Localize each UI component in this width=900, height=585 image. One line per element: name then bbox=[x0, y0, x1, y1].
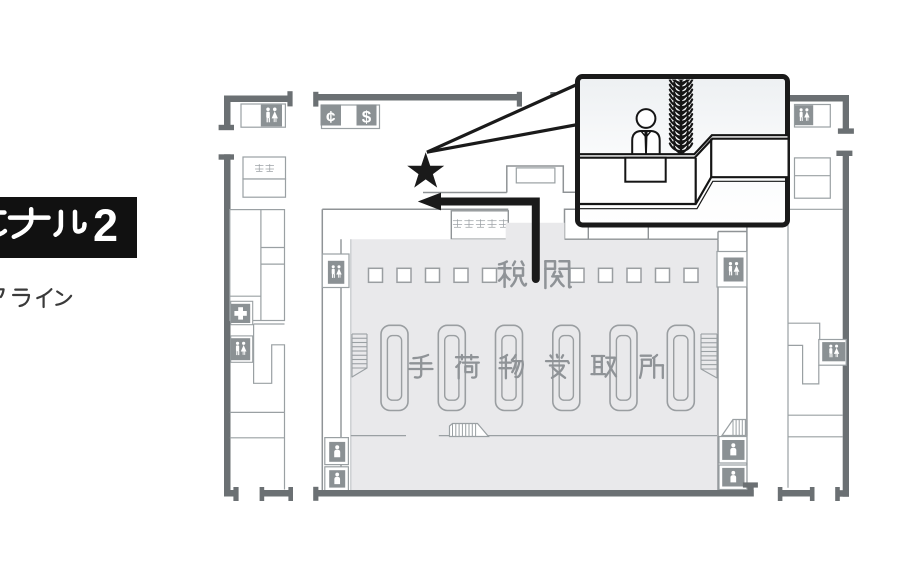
svg-text:2: 2 bbox=[93, 200, 118, 251]
svg-text:$: $ bbox=[362, 108, 372, 127]
svg-text:¢: ¢ bbox=[326, 108, 336, 127]
